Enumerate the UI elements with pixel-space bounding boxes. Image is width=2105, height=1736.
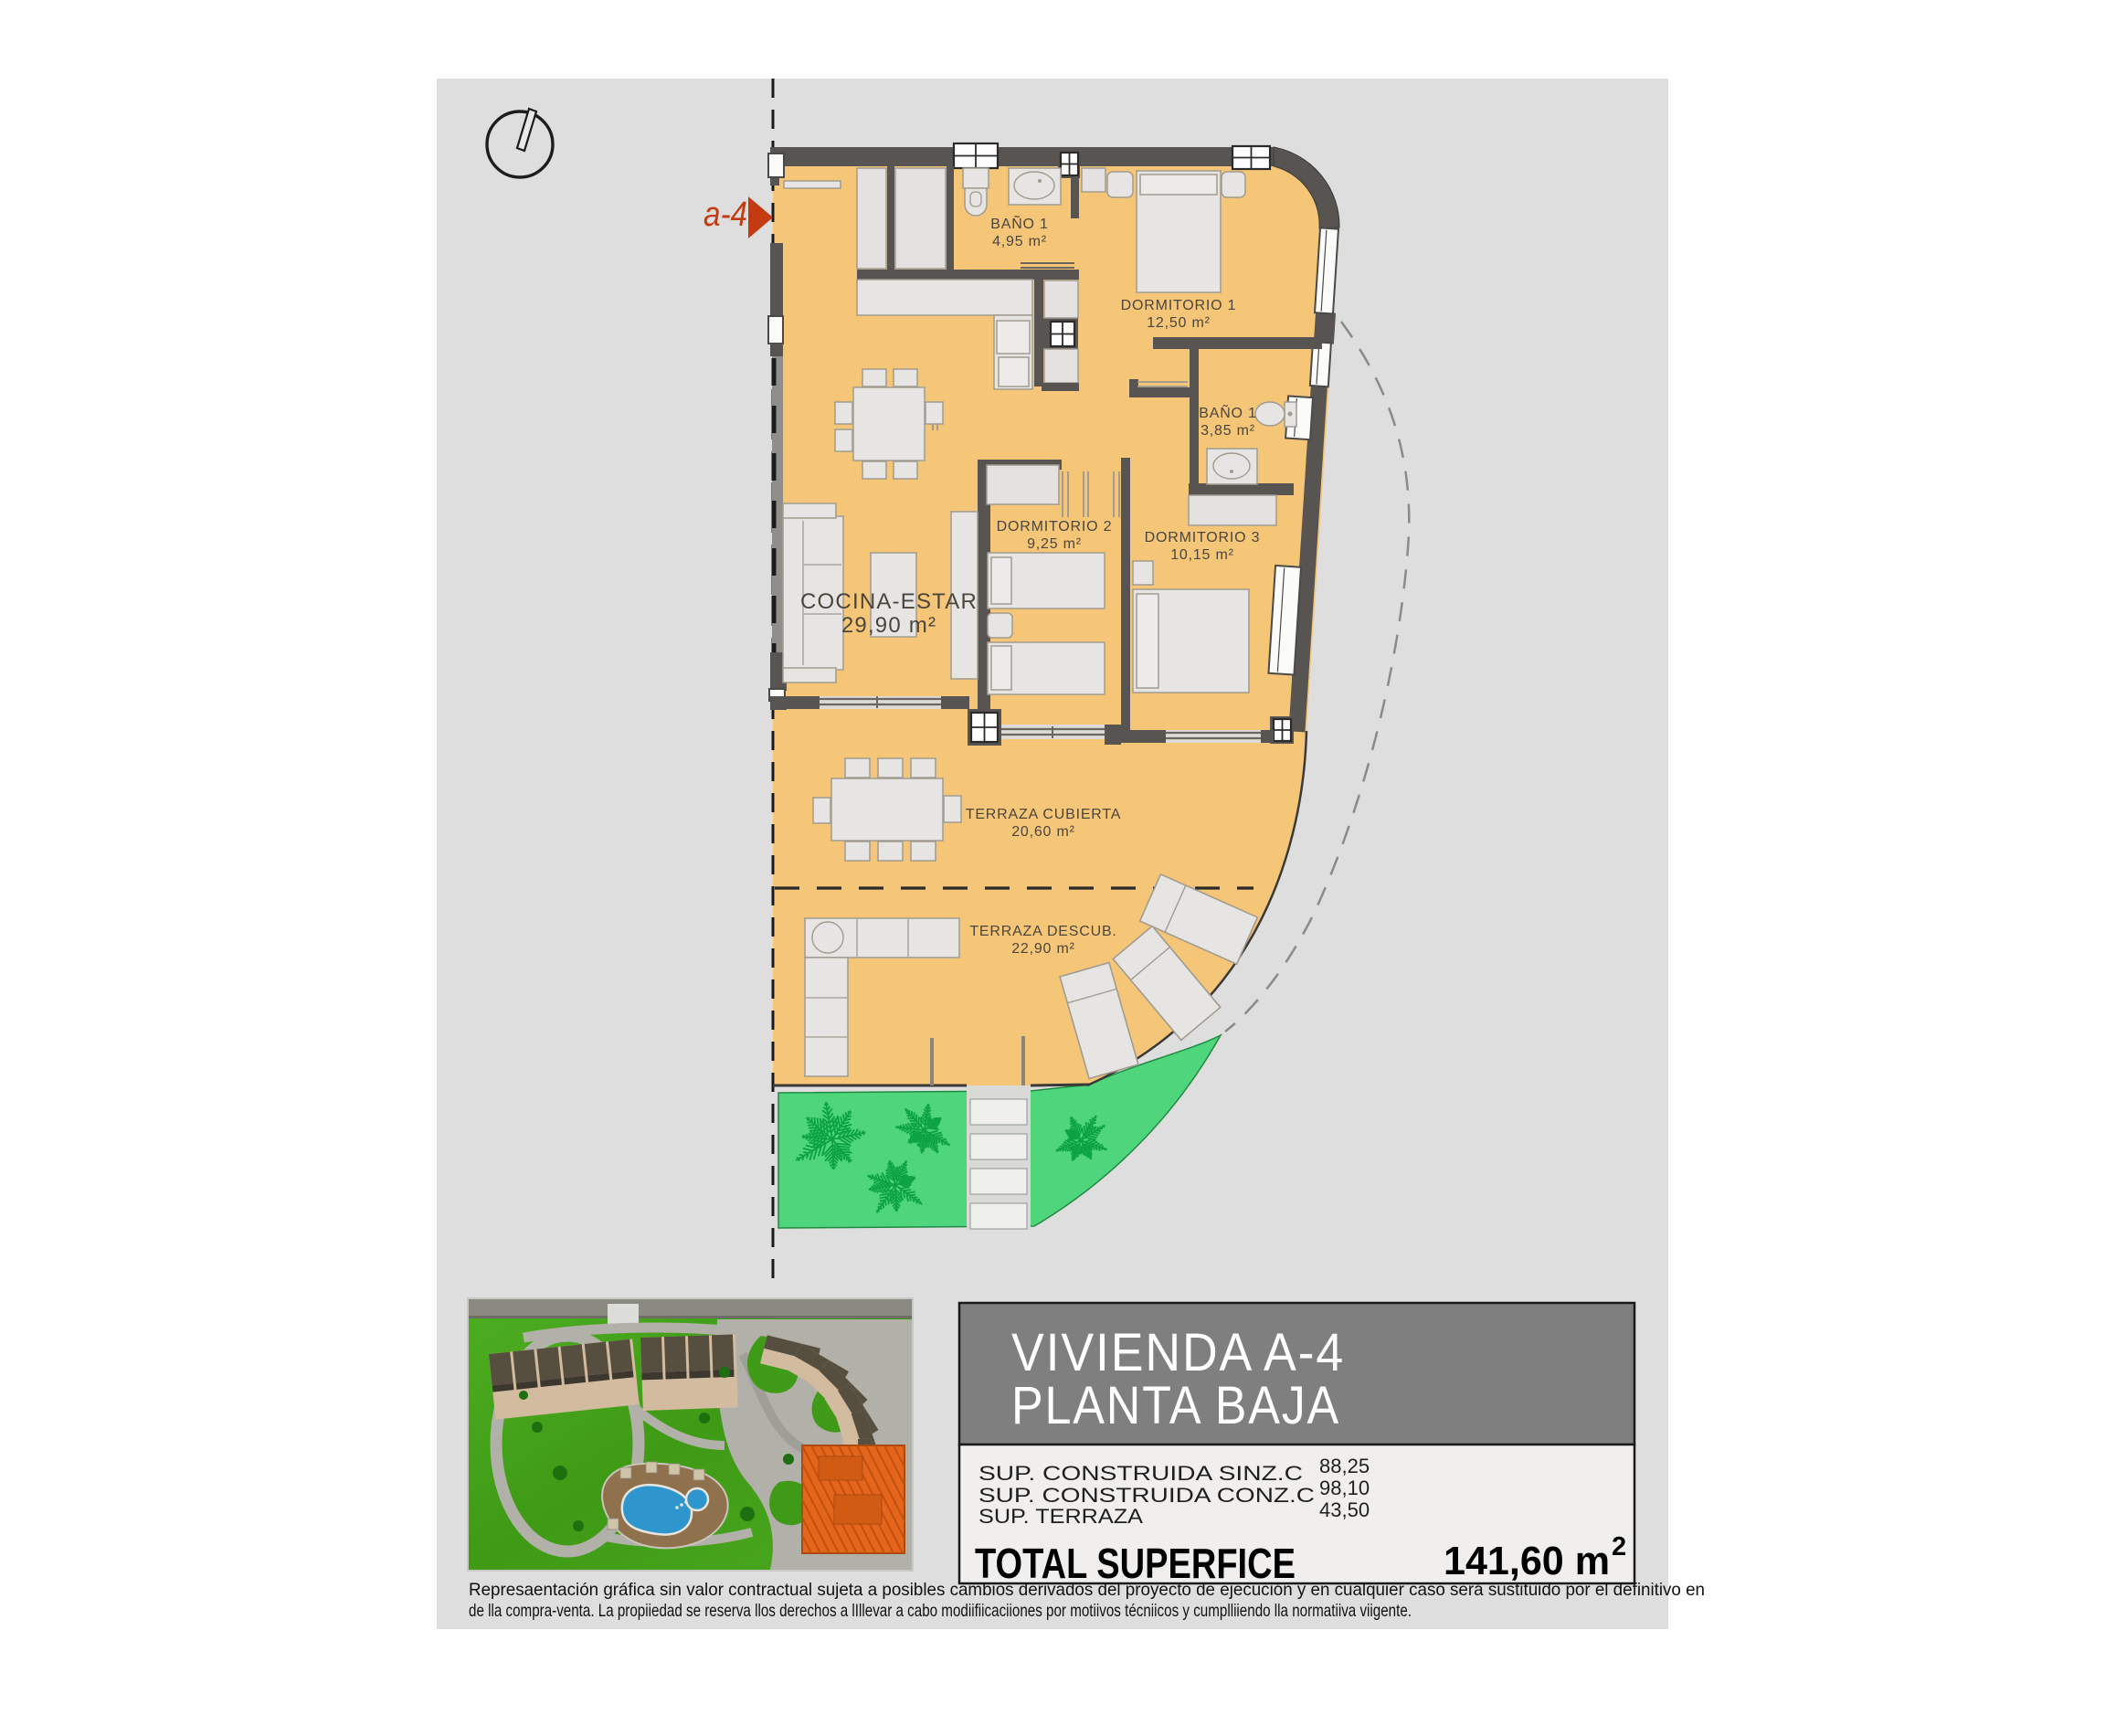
svg-text:3,85 m²: 3,85 m² xyxy=(1201,423,1255,439)
svg-text:10,15 m²: 10,15 m² xyxy=(1170,547,1234,563)
svg-text:43,50: 43,50 xyxy=(1319,1498,1370,1521)
svg-text:DORMITORIO 1: DORMITORIO 1 xyxy=(1121,298,1237,313)
svg-text:141,60 m: 141,60 m xyxy=(1444,1539,1610,1583)
svg-text:SUP. CONSTRUIDA CONZ.C: SUP. CONSTRUIDA CONZ.C xyxy=(978,1484,1315,1507)
svg-text:DORMITORIO 3: DORMITORIO 3 xyxy=(1145,530,1261,545)
svg-text:BAÑO 1: BAÑO 1 xyxy=(990,214,1049,232)
svg-text:98,10: 98,10 xyxy=(1319,1477,1370,1499)
svg-text:29,90 m²: 29,90 m² xyxy=(841,613,936,638)
svg-text:PLANTA BAJA: PLANTA BAJA xyxy=(1011,1376,1340,1435)
svg-text:4,95 m²: 4,95 m² xyxy=(992,234,1047,249)
svg-text:a-4: a-4 xyxy=(703,196,747,234)
svg-text:Represaentación gráfica sin va: Represaentación gráfica sin valor contra… xyxy=(469,1580,1705,1600)
svg-text:BAÑO 1: BAÑO 1 xyxy=(1199,403,1257,421)
svg-text:COCINA-ESTAR: COCINA-ESTAR xyxy=(800,589,978,614)
svg-text:TERRAZA DESCUB.: TERRAZA DESCUB. xyxy=(969,924,1116,939)
svg-text:TERRAZA CUBIERTA: TERRAZA CUBIERTA xyxy=(966,807,1121,822)
svg-text:9,25 m²: 9,25 m² xyxy=(1027,536,1082,552)
svg-text:SUP. TERRAZA: SUP. TERRAZA xyxy=(978,1505,1143,1528)
svg-text:VIVIENDA A-4: VIVIENDA A-4 xyxy=(1011,1323,1345,1382)
svg-text:20,60 m²: 20,60 m² xyxy=(1011,824,1075,840)
svg-text:12,50 m²: 12,50 m² xyxy=(1147,315,1211,331)
svg-text:de lla compra-venta. La propii: de lla compra-venta. La propiiedad se re… xyxy=(469,1601,1412,1621)
svg-text:2: 2 xyxy=(1612,1532,1626,1561)
svg-text:DORMITORIO 2: DORMITORIO 2 xyxy=(997,519,1113,535)
svg-text:SUP. CONSTRUIDA SINZ.C: SUP. CONSTRUIDA SINZ.C xyxy=(978,1462,1303,1485)
svg-text:22,90 m²: 22,90 m² xyxy=(1011,941,1075,957)
svg-text:88,25: 88,25 xyxy=(1319,1455,1370,1477)
